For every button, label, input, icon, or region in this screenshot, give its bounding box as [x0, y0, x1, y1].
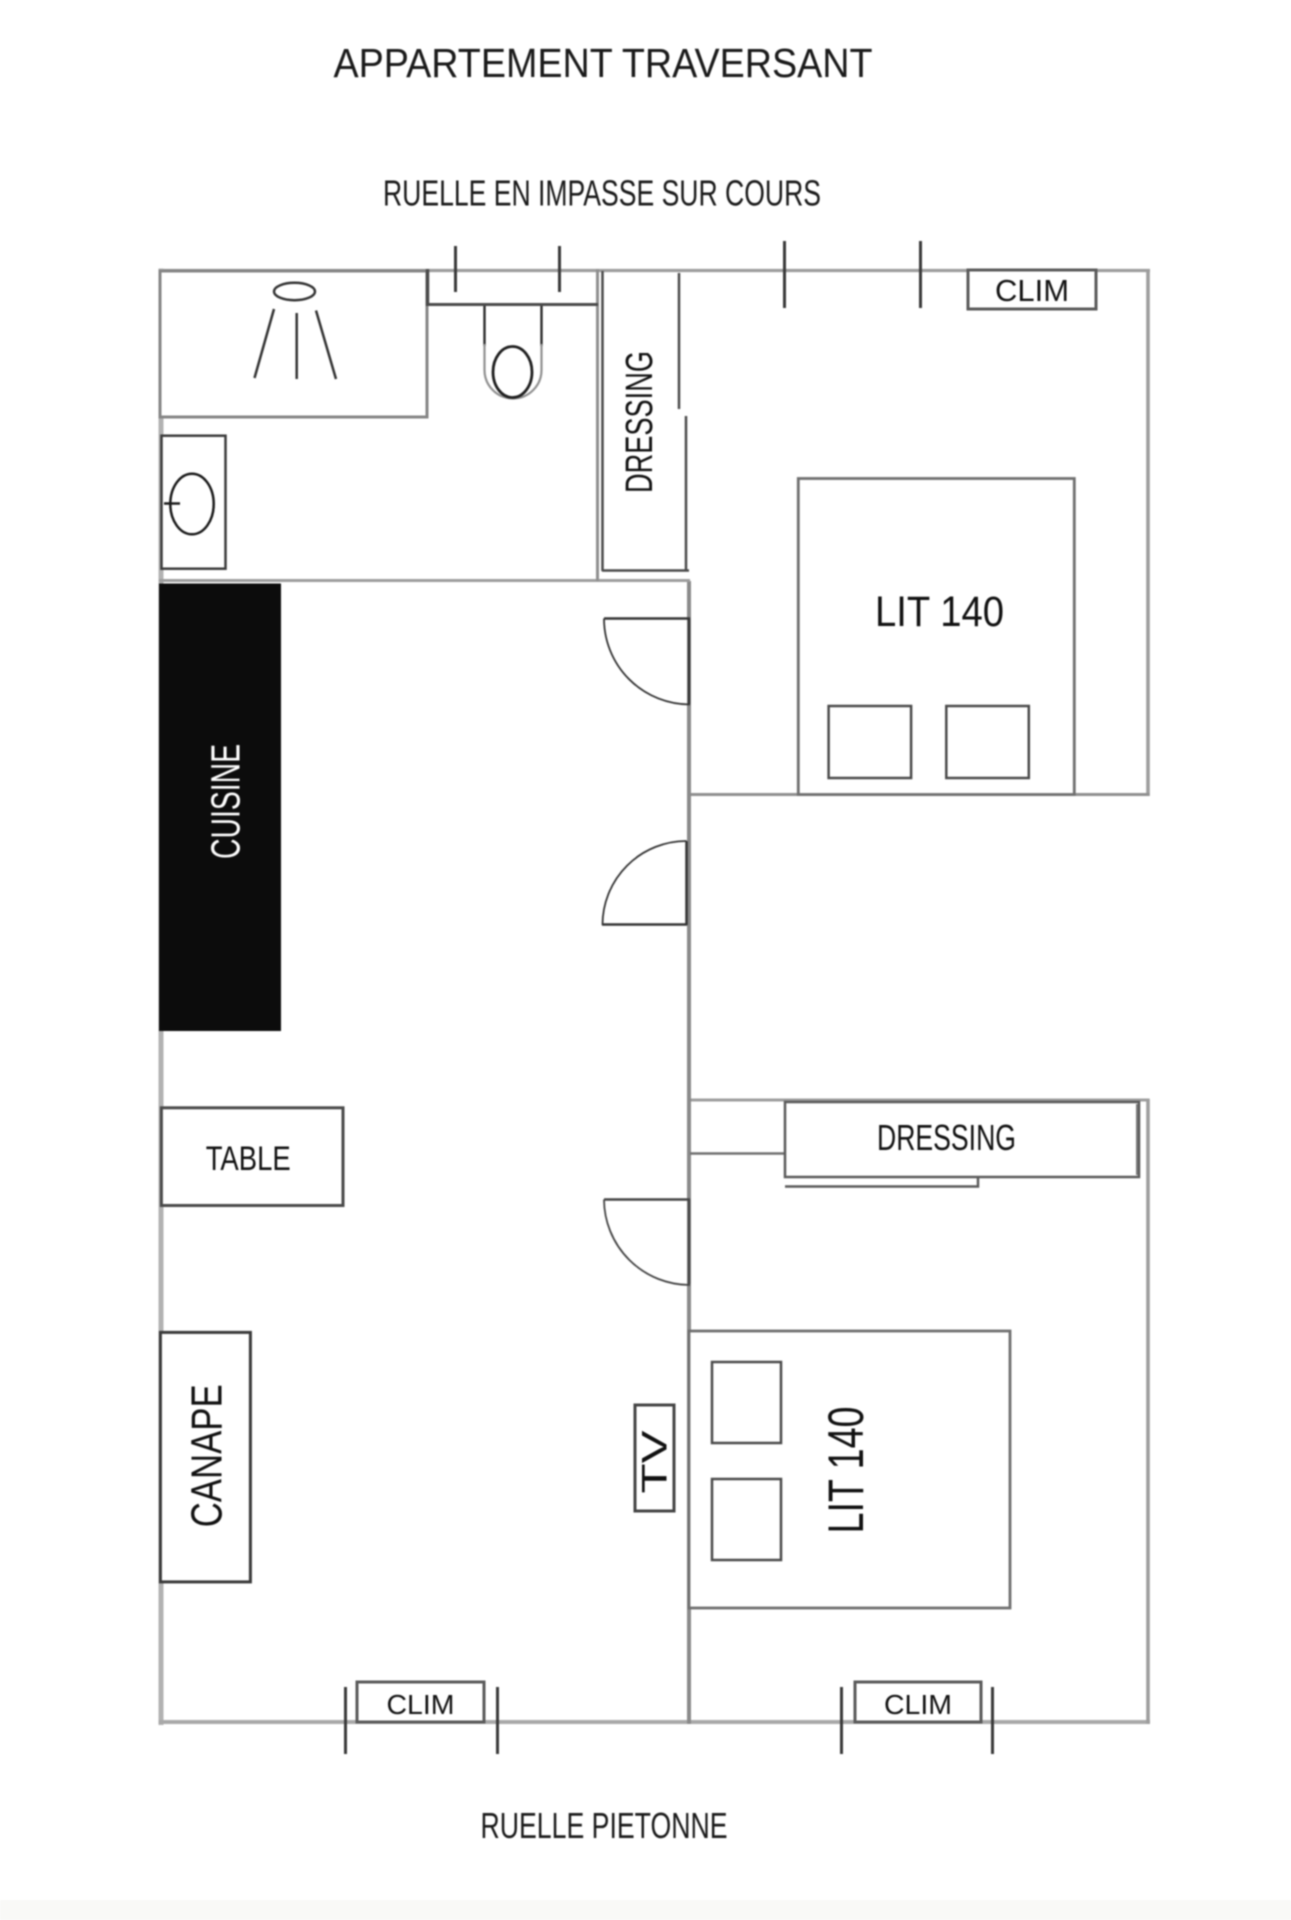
svg-text:TV: TV [635, 1430, 674, 1494]
svg-text:APPARTEMENT TRAVERSANT: APPARTEMENT TRAVERSANT [334, 40, 873, 86]
svg-text:RUELLE PIETONNE: RUELLE PIETONNE [481, 1805, 728, 1846]
svg-text:CLIM: CLIM [387, 1689, 455, 1720]
svg-text:CLIM: CLIM [995, 273, 1069, 308]
svg-text:CUISINE: CUISINE [202, 744, 248, 859]
svg-text:CLIM: CLIM [884, 1689, 952, 1720]
svg-text:DRESSING: DRESSING [877, 1117, 1016, 1158]
svg-text:LIT 140: LIT 140 [818, 1407, 874, 1534]
svg-text:RUELLE EN IMPASSE SUR COURS: RUELLE EN IMPASSE SUR COURS [383, 173, 821, 214]
svg-text:TABLE: TABLE [206, 1140, 291, 1178]
svg-text:CANAPE: CANAPE [183, 1384, 232, 1527]
svg-text:LIT 140: LIT 140 [875, 588, 1004, 636]
svg-text:DRESSING: DRESSING [619, 351, 661, 493]
